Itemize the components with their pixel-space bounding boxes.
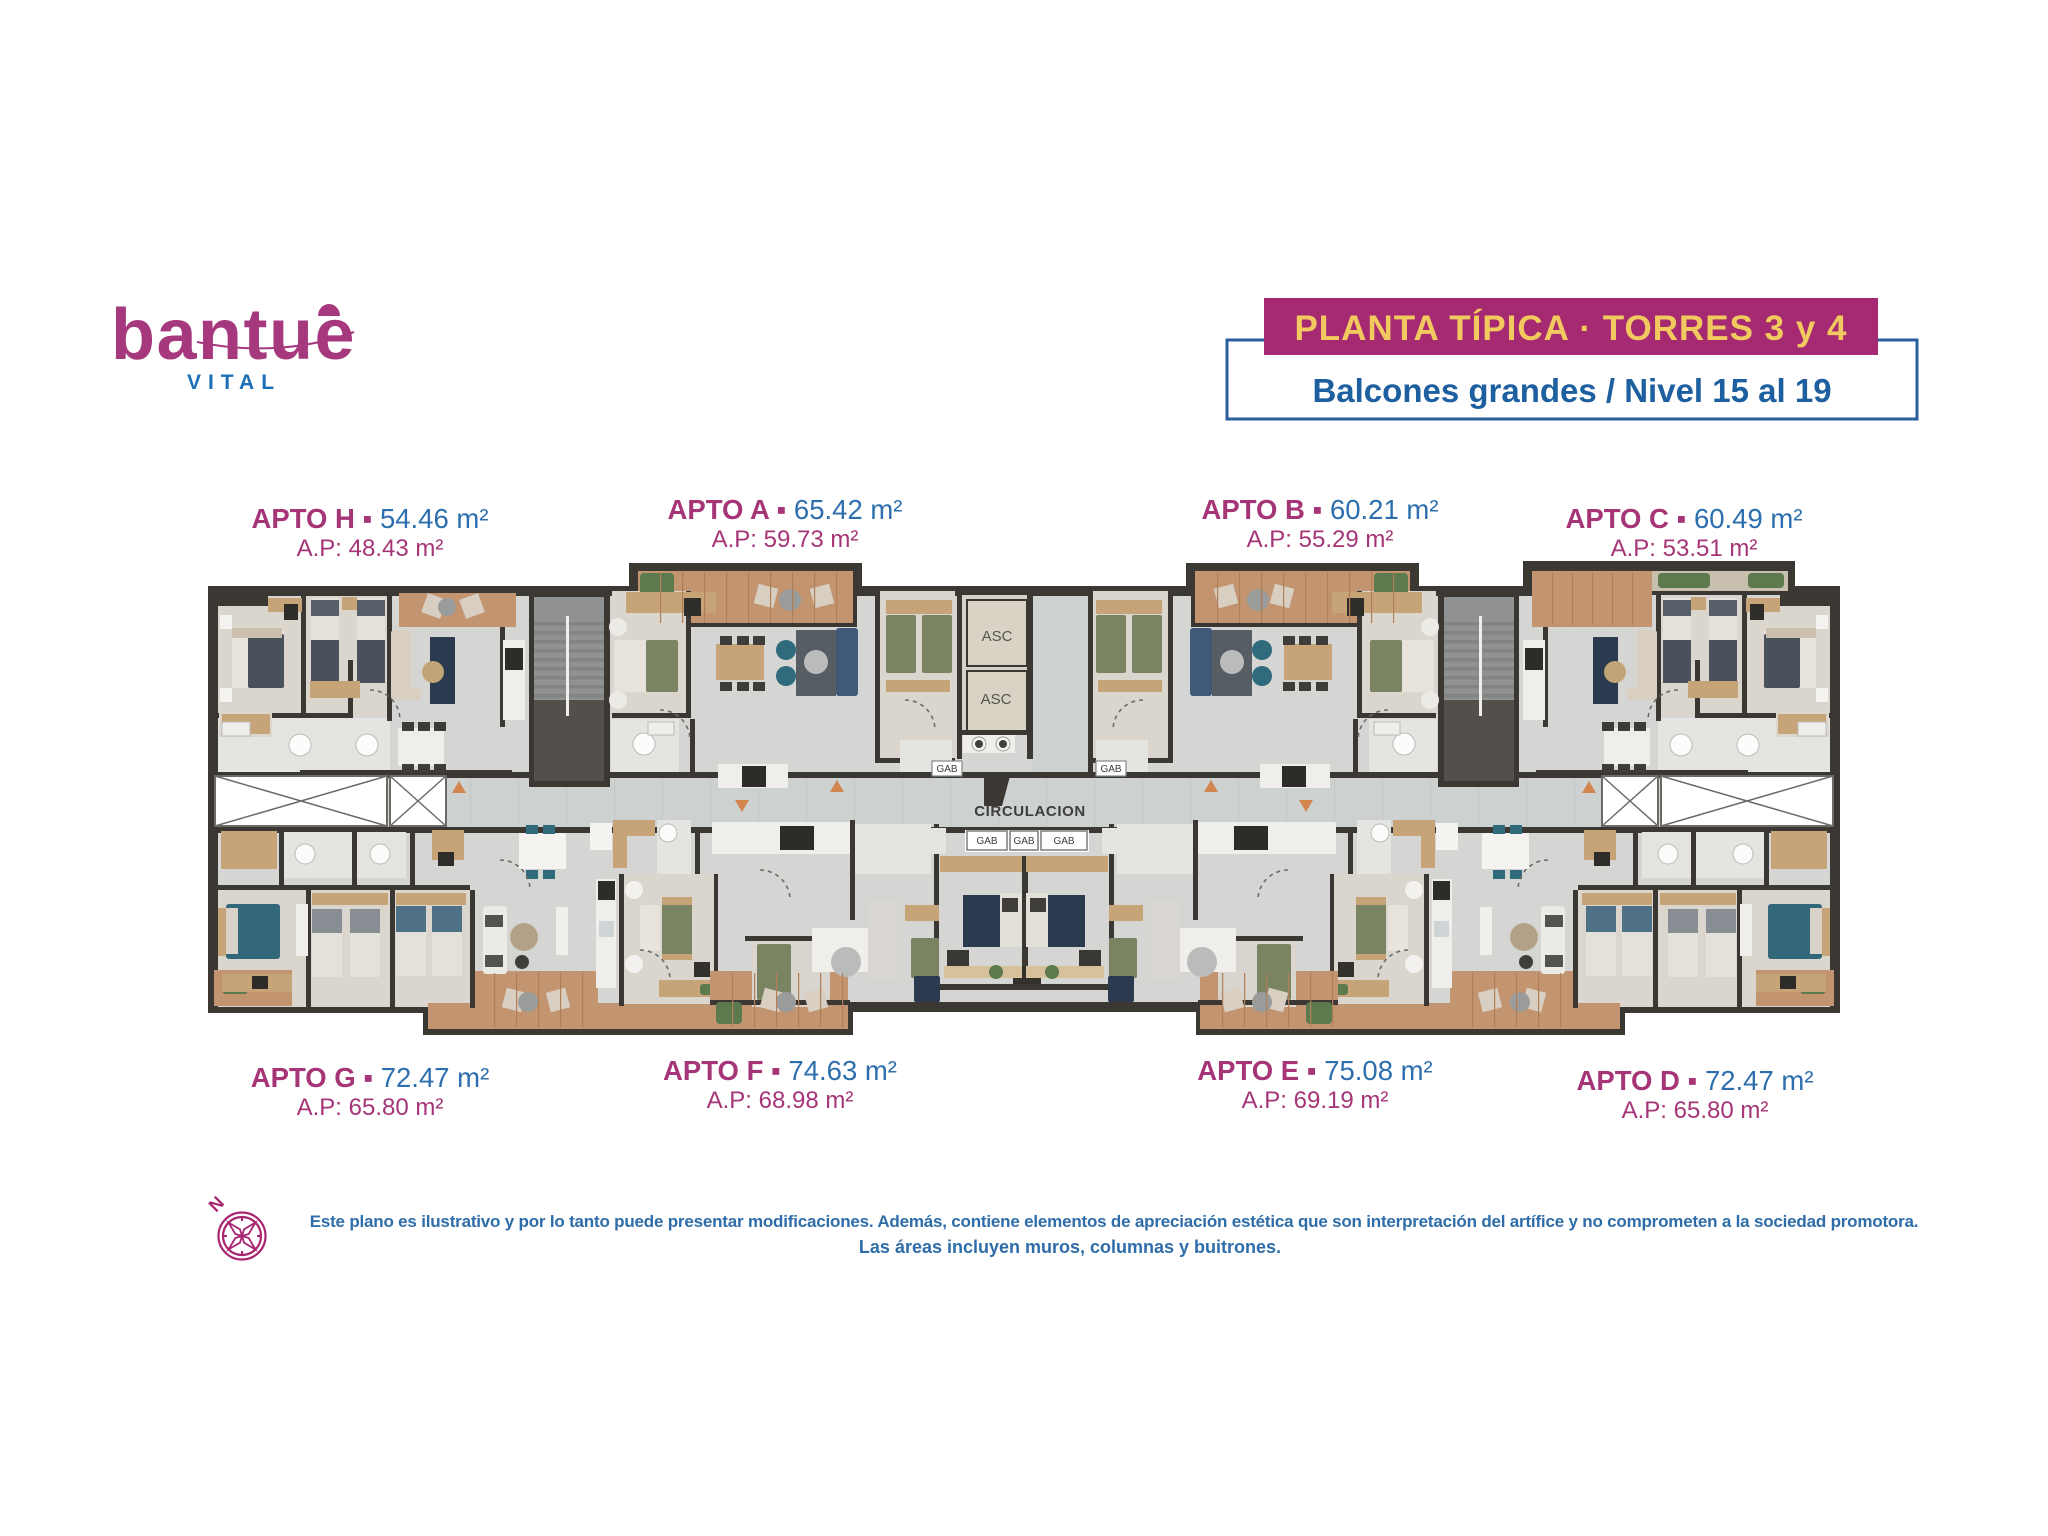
svg-text:GAB: GAB — [936, 764, 957, 775]
svg-text:PLANTA TÍPICA · TORRES 3 y 4: PLANTA TÍPICA · TORRES 3 y 4 — [1294, 308, 1847, 348]
svg-text:Las áreas incluyen muros, colu: Las áreas incluyen muros, columnas y bui… — [859, 1237, 1281, 1257]
svg-text:ASC: ASC — [982, 628, 1013, 645]
svg-text:APTO H ▪ 54.46 m²: APTO H ▪ 54.46 m² — [252, 503, 489, 534]
svg-text:A.P: 59.73 m²: A.P: 59.73 m² — [712, 526, 859, 553]
svg-text:APTO E ▪ 75.08 m²: APTO E ▪ 75.08 m² — [1197, 1055, 1432, 1086]
svg-text:A.P: 55.29 m²: A.P: 55.29 m² — [1247, 526, 1394, 553]
svg-text:A.P: 65.80 m²: A.P: 65.80 m² — [1622, 1097, 1769, 1124]
svg-text:ASC: ASC — [981, 691, 1012, 708]
svg-text:GAB: GAB — [1100, 764, 1121, 775]
svg-text:GAB: GAB — [976, 836, 997, 847]
svg-text:A.P: 69.19 m²: A.P: 69.19 m² — [1242, 1087, 1389, 1114]
svg-text:A.P: 48.43 m²: A.P: 48.43 m² — [297, 535, 444, 562]
svg-text:GAB: GAB — [1013, 836, 1034, 847]
svg-text:CIRCULACION: CIRCULACION — [974, 803, 1086, 820]
svg-text:APTO B ▪ 60.21 m²: APTO B ▪ 60.21 m² — [1202, 494, 1439, 525]
svg-text:bantue: bantue — [111, 295, 356, 375]
svg-text:A.P: 53.51 m²: A.P: 53.51 m² — [1611, 535, 1758, 562]
svg-text:Este plano es ilustrativo y po: Este plano es ilustrativo y por lo tanto… — [310, 1212, 1919, 1231]
svg-text:GAB: GAB — [1053, 836, 1074, 847]
svg-text:APTO A ▪ 65.42 m²: APTO A ▪ 65.42 m² — [668, 494, 903, 525]
svg-text:A.P: 65.80 m²: A.P: 65.80 m² — [297, 1094, 444, 1121]
svg-text:A.P: 68.98 m²: A.P: 68.98 m² — [707, 1087, 854, 1114]
svg-text:Balcones grandes / Nivel 15 al: Balcones grandes / Nivel 15 al 19 — [1312, 372, 1831, 409]
svg-text:VITAL: VITAL — [187, 371, 281, 394]
svg-text:APTO C ▪ 60.49 m²: APTO C ▪ 60.49 m² — [1566, 503, 1803, 534]
svg-text:APTO G ▪ 72.47 m²: APTO G ▪ 72.47 m² — [251, 1062, 490, 1093]
svg-text:APTO D ▪ 72.47 m²: APTO D ▪ 72.47 m² — [1577, 1065, 1814, 1096]
svg-text:APTO F ▪ 74.63 m²: APTO F ▪ 74.63 m² — [663, 1055, 897, 1086]
